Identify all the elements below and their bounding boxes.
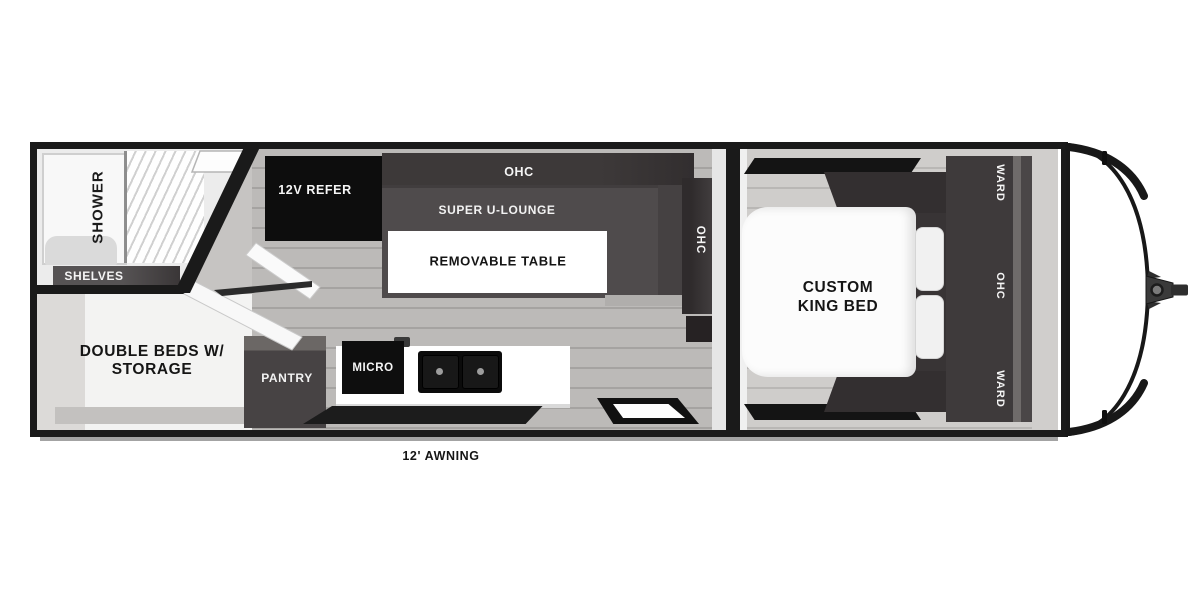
front-cap-rim-bottom	[1069, 383, 1144, 432]
hitch-ball-socket	[1152, 285, 1163, 296]
cap-latch-top	[1102, 151, 1107, 165]
cap-latch-bottom	[1102, 410, 1107, 424]
hitch-fin-top	[1146, 271, 1161, 279]
awning-bar	[40, 437, 1058, 441]
front-cap-rim-top	[1069, 147, 1144, 196]
hitch-body	[1146, 276, 1173, 304]
hitch-fin-bottom	[1146, 301, 1161, 309]
trailer-body-outline	[30, 142, 1068, 437]
front-cap	[1068, 145, 1148, 434]
awning-label: 12' AWNING	[402, 449, 479, 463]
hitch-tongue	[1171, 285, 1188, 296]
floorplan-canvas: SHOWER SHELVES DOUBLE BEDS W/ STORAGE OH…	[0, 0, 1200, 600]
